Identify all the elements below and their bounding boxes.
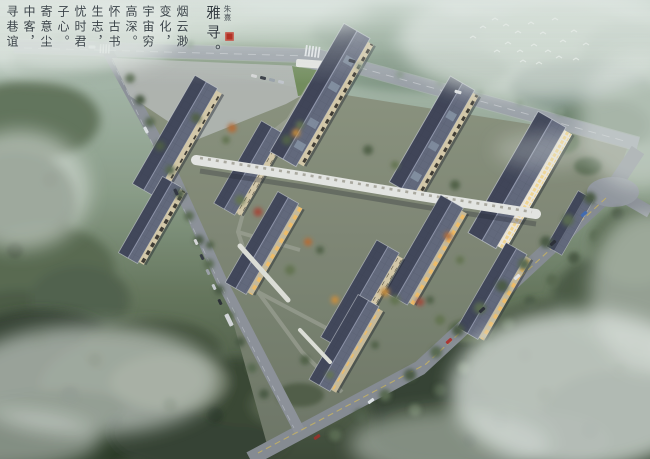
artist-signature: 朱熹 [225, 5, 234, 29]
calligraphy-column: 寄意尘 [40, 5, 53, 75]
seal-stamp [225, 32, 234, 41]
calligraphy-column: 变化， [159, 5, 172, 75]
signature-block: 朱熹 [225, 5, 234, 41]
calligraphy-column: 怀古书 [108, 5, 121, 75]
calligraphy-title-column: 雅寻。 [202, 5, 219, 83]
calligraphy-column: 忧时君 [74, 5, 87, 75]
calligraphy-column: 生志， [91, 5, 104, 75]
calligraphy-inscription: 寻巷谊 中客， 寄意尘 子心。 忧时君 生志， 怀古书 高深。 宇宙穷 变化， … [6, 5, 234, 83]
calligraphy-column: 宇宙穷 [142, 5, 155, 75]
calligraphy-column: 烟云渺 [176, 5, 189, 75]
calligraphy-column: 高深。 [125, 5, 138, 75]
rendering-canvas: 寻巷谊 中客， 寄意尘 子心。 忧时君 生志， 怀古书 高深。 宇宙穷 变化， … [0, 0, 650, 459]
calligraphy-column: 中客， [23, 5, 36, 75]
calligraphy-column: 寻巷谊 [6, 5, 19, 75]
calligraphy-column: 子心。 [57, 5, 70, 75]
